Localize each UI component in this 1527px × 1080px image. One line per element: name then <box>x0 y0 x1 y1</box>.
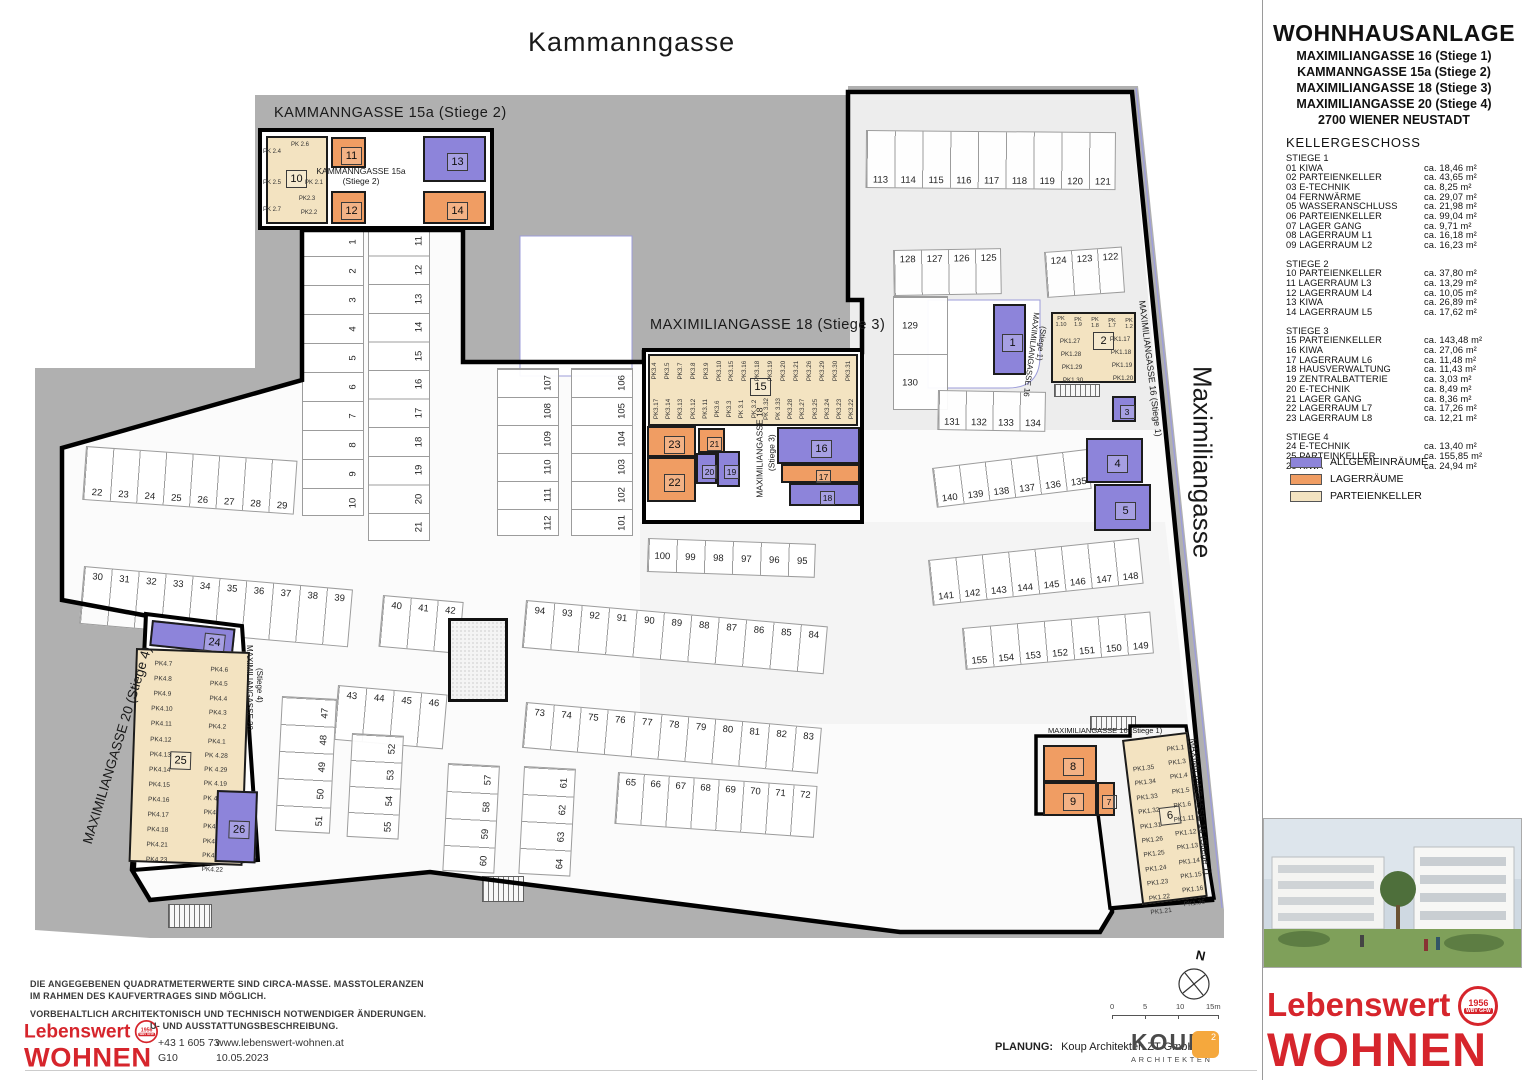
pk-space-label: PK1.26 <box>1142 836 1164 845</box>
parking-space-number: 73 <box>534 707 545 719</box>
room-16: 16 <box>777 427 860 464</box>
parking-space-number: 152 <box>1052 647 1069 659</box>
parking-space-number: 87 <box>726 622 737 634</box>
parking-space-number: 141 <box>938 590 955 603</box>
planung-label: PLANUNG: <box>995 1041 1053 1053</box>
stiege2-center-1: KAMMANNGASSE 15a <box>300 167 422 176</box>
room-number-badge: 12 <box>341 202 362 220</box>
parking-space-number: 24 <box>144 491 155 503</box>
parking-group-col-11-21: 1112131415161718192021 <box>368 226 430 541</box>
parking-space-number: 149 <box>1132 640 1149 652</box>
pk-space-label: PK4.11 <box>151 722 172 730</box>
parking-space-number: 86 <box>753 624 764 636</box>
room-11: 11 <box>331 137 366 168</box>
pk-space-label: PK 2.4 <box>263 149 281 155</box>
project-photo <box>1263 818 1522 968</box>
pk-space-label: PK 1.7 <box>1105 319 1120 331</box>
storage-room <box>448 618 508 702</box>
parking-space-number: 35 <box>226 583 237 595</box>
pk-space-label: PK 4.28 <box>205 753 228 761</box>
room-23: 23 <box>647 426 696 457</box>
pk-space-label: PK1.15 <box>1180 872 1202 881</box>
parking-space-number: 21 <box>414 522 425 533</box>
pk-space-label: PK1.28 <box>1061 352 1081 359</box>
parking-space-number: 71 <box>775 788 786 800</box>
pk-space-label: PK1.19 <box>1112 363 1132 370</box>
pk-space-label: PK4.16 <box>148 797 170 805</box>
parking-space-number: 32 <box>146 576 157 588</box>
compass-icon <box>1174 964 1214 1004</box>
room-21: 21 <box>698 428 725 453</box>
parking-space-number: 118 <box>1012 176 1027 187</box>
parking-space-number: 16 <box>414 379 425 390</box>
parking-space-number: 125 <box>981 253 997 264</box>
pk-space-label: PK1.1 <box>1166 745 1184 754</box>
pk-space-label: PK 2.6 <box>291 142 309 148</box>
pk-space-label: PK3.27 <box>800 399 807 419</box>
parking-space-number: 105 <box>617 403 628 419</box>
parking-group-row-113-121: 113114115116117118119120121 <box>865 130 1116 190</box>
pk-space-label: PK3.5 <box>665 363 672 380</box>
parking-space-number: 108 <box>543 403 554 419</box>
parking-group-col-1-10: 12345678910 <box>302 226 364 516</box>
pk-space-label: PK1.25 <box>1143 851 1165 860</box>
pk-space-label: PK3.8 <box>690 363 697 380</box>
parking-space-number: 130 <box>902 377 918 388</box>
room-8: 8 <box>1043 745 1097 782</box>
pk-space-label: PK4.23 <box>146 857 168 865</box>
pk-space-label: PK4.14 <box>149 767 171 775</box>
pk-space-label: PK4.4 <box>209 696 227 703</box>
schedule-room-name: 14 LAGERRAUM L5 <box>1286 308 1424 318</box>
pk-space-label: PK2.3 <box>299 196 315 202</box>
stiege3-header: MAXIMILIANGASSE 18 (Stiege 3) <box>650 318 885 334</box>
parking-space-number: 54 <box>384 795 396 806</box>
parking-space-number: 100 <box>654 551 670 563</box>
schedule-group: STIEGE 315 PARTEIENKELLERca. 143,48 m²16… <box>1286 326 1512 424</box>
floor-title: KELLERGESCHOSS <box>1286 135 1421 150</box>
pk-space-label: PK 2.7 <box>263 207 281 213</box>
parking-space-number: 98 <box>713 553 724 564</box>
address-line: MAXIMILIANGASSE 20 (Stiege 4) <box>1266 96 1522 112</box>
parking-space-number: 122 <box>1102 251 1119 263</box>
pk-space-label: PK4.21 <box>146 842 168 850</box>
room-17: 17 <box>781 464 860 483</box>
pk-space-label: PK3.6 <box>715 401 722 418</box>
parking-space-number: 91 <box>616 612 627 624</box>
parking-space-number: 39 <box>334 592 345 604</box>
north-label: N <box>1195 947 1207 964</box>
parking-space-number: 114 <box>901 175 916 186</box>
parking-space-number: 57 <box>482 774 494 785</box>
parking-space-number: 31 <box>119 574 130 586</box>
legend-swatch <box>1290 491 1322 502</box>
street-kammanngasse: Kammanngasse <box>528 28 735 58</box>
parking-space-number: 132 <box>971 417 987 428</box>
pk-space-label: PK3.28 <box>788 399 795 419</box>
parking-space-number: 121 <box>1095 176 1111 187</box>
parking-group-row-73-83: 7374757677787980818283 <box>522 702 822 774</box>
parking-space-number: 68 <box>700 782 711 794</box>
parking-space-number: 37 <box>280 588 291 600</box>
parking-space-number: 135 <box>1070 476 1087 489</box>
parking-space-number: 116 <box>956 175 971 186</box>
parking-space-number: 18 <box>414 436 425 447</box>
parking-space-number: 13 <box>414 293 425 304</box>
parking-space-number: 109 <box>543 431 554 447</box>
parking-space-number: 11 <box>414 236 425 246</box>
address-line: MAXIMILIANGASSE 18 (Stiege 3) <box>1266 80 1522 96</box>
parking-space-number: 84 <box>808 629 819 641</box>
parking-space-number: 8 <box>348 442 359 447</box>
parking-space-number: 110 <box>543 459 554 474</box>
pk-space-label: PK1.14 <box>1178 858 1200 867</box>
parking-space-number: 42 <box>445 605 456 617</box>
parking-space-number: 19 <box>414 465 425 476</box>
room-20: 20 <box>696 453 717 484</box>
parking-space-number: 124 <box>1050 255 1067 267</box>
website: www.lebenswert-wohnen.at <box>216 1037 344 1049</box>
parking-space-number: 15 <box>414 350 425 361</box>
room-number-badge: 9 <box>1063 793 1084 811</box>
parking-space-number: 123 <box>1076 253 1093 265</box>
room-4: 4 <box>1086 438 1143 483</box>
pk-space-label: PK3.26 <box>807 361 814 381</box>
schedule-room-name: 23 LAGERRAUM L8 <box>1286 414 1424 424</box>
parking-space-number: 144 <box>1017 582 1034 595</box>
legend: ALLGEMEINRÄUMELAGERRÄUMEPARTEIENKELLER <box>1290 456 1428 507</box>
pk-space-label: PK 1.9 <box>1071 318 1086 330</box>
parking-space-number: 95 <box>797 556 808 567</box>
north-arrow: N <box>1172 948 1222 1010</box>
schedule-room-area: ca. 24,94 m² <box>1424 462 1512 472</box>
parking-space-number: 99 <box>685 552 696 563</box>
room-number-badge: 17 <box>816 470 831 484</box>
parking-space-number: 62 <box>557 804 569 815</box>
parking-group-row-141-148: 141142143144145146147148 <box>928 538 1144 606</box>
pk-space-label: PK 3.1 <box>739 400 746 419</box>
room-number-badge: 4 <box>1107 455 1128 473</box>
parking-space-number: 80 <box>722 724 733 736</box>
parking-space-number: 133 <box>998 418 1014 429</box>
parking-space-number: 14 <box>414 322 425 333</box>
parking-space-number: 72 <box>800 789 811 801</box>
room-number-badge: 23 <box>664 436 685 454</box>
pk-space-label: PK1.35 <box>1133 765 1155 774</box>
stiege2-center-2: (Stiege 2) <box>300 177 422 186</box>
parking-space-number: 126 <box>954 253 970 264</box>
parking-space-number: 58 <box>481 801 493 812</box>
pk-space-label: PK3.23 <box>837 399 844 419</box>
parking-space-number: 127 <box>927 254 943 265</box>
pk-space-label: PK3.14 <box>666 399 673 419</box>
legend-label: LAGERRÄUME <box>1330 473 1404 485</box>
room-number-badge: 1 <box>1002 334 1023 352</box>
scale-tick-label: 5 <box>1143 1002 1147 1011</box>
pk-space-label: PK1.29 <box>1062 365 1082 372</box>
pk-space-label: PK3.15 <box>729 361 736 381</box>
parking-space-number: 4 <box>348 326 359 331</box>
parking-space-number: 23 <box>118 489 129 501</box>
parking-space-number: 148 <box>1122 571 1139 584</box>
parking-space-number: 78 <box>668 719 679 731</box>
room-number-badge: 18 <box>820 491 835 505</box>
parking-space-number: 6 <box>348 384 359 389</box>
parking-space-number: 88 <box>698 620 709 632</box>
pk-space-label: PK3.10 <box>716 361 723 381</box>
pk-space-label: PK3.13 <box>678 399 685 419</box>
stair-ramp <box>482 876 524 902</box>
pk-space-label: PK4.9 <box>153 691 171 698</box>
parking-space-number: 33 <box>173 578 184 590</box>
parking-group-row-95-100: 1009998979695 <box>647 538 816 578</box>
stiege4-small-2: (Stiege 4) <box>254 668 263 703</box>
room-18: 18 <box>789 483 860 506</box>
legend-item-allgemein: ALLGEMEINRÄUME <box>1290 456 1428 468</box>
parking-space-number: 75 <box>588 712 599 724</box>
pk-space-label: PK1.36 <box>1184 900 1206 909</box>
note-sqm-2: IM RAHMEN DES KAUFVERTRAGES SIND MÖGLICH… <box>30 991 266 1001</box>
room-number-badge: 21 <box>707 437 722 451</box>
parking-space-number: 151 <box>1079 645 1096 657</box>
parking-space-number: 29 <box>276 500 287 512</box>
parking-space-number: 34 <box>199 581 210 593</box>
parking-space-number: 107 <box>543 375 554 391</box>
parking-space-number: 22 <box>91 487 102 499</box>
stair-ramp <box>1054 384 1100 397</box>
parking-space-number: 2 <box>348 268 359 273</box>
parking-space-number: 113 <box>873 175 888 186</box>
plan-number: G10 <box>158 1052 178 1064</box>
logo-text-wohnen: WOHNEN <box>24 1041 158 1073</box>
pk-space-label: PK1.30 <box>1063 378 1083 385</box>
parking-space-number: 45 <box>401 695 412 707</box>
parking-space-number: 145 <box>1043 579 1060 592</box>
room-3: 3 <box>1112 396 1136 422</box>
phone-number: +43 1 605 73 <box>158 1037 220 1049</box>
room-19: 19 <box>717 451 740 487</box>
parking-space-number: 77 <box>641 717 652 729</box>
legend-label: PARTEIENKELLER <box>1330 490 1422 502</box>
parking-group-row-122-124: 124123122 <box>1044 247 1125 298</box>
room-number-badge: 25 <box>170 751 192 770</box>
stair-ramp <box>372 140 426 156</box>
parking-space-number: 97 <box>741 554 752 565</box>
parking-space-number: 92 <box>589 610 600 622</box>
pk-space-label: PK1.21 <box>1150 908 1172 917</box>
schedule-row: 14 LAGERRAUM L5ca. 17,62 m² <box>1286 308 1512 318</box>
lebenswert-wohnen-logo: Lebenswert 1956 WBV GFW WOHNEN <box>1267 986 1498 1077</box>
parking-space-number: 119 <box>1040 176 1055 187</box>
pk-space-label: PK1.3 <box>1168 759 1186 768</box>
parking-space-number: 9 <box>348 471 359 476</box>
parking-group-row-135-140: 140139138137136135 <box>932 449 1092 508</box>
parking-space-number: 27 <box>224 496 235 508</box>
parking-space-number: 46 <box>428 697 439 709</box>
project-title: WOHNHAUSANLAGE <box>1266 20 1522 47</box>
parking-space-number: 76 <box>615 714 626 726</box>
pk-space-label: PK4.7 <box>154 661 172 668</box>
parking-space-number: 63 <box>556 831 568 842</box>
parking-space-number: 66 <box>650 779 661 791</box>
room-number-badge: 7 <box>1102 795 1117 809</box>
parking-space-number: 41 <box>418 603 429 615</box>
pk-space-label: PK1.27 <box>1060 339 1080 346</box>
note-sqm-1: DIE ANGEGEBENEN QUADRATMETERWERTE SIND C… <box>30 979 424 989</box>
legend-swatch <box>1290 457 1322 468</box>
street-maximiliangasse: Maximiliangasse <box>1188 366 1217 558</box>
parking-space-number: 43 <box>346 690 357 702</box>
parking-space-number: 1 <box>348 239 359 244</box>
parking-group-row-65-72: 6566676869707172 <box>614 772 817 838</box>
pk-space-label: PK3.11 <box>703 399 710 419</box>
scale-line <box>1112 1015 1218 1016</box>
schedule-group-title: STIEGE 1 <box>1286 153 1512 164</box>
parking-space-number: 52 <box>386 744 398 755</box>
parking-space-number: 55 <box>382 821 394 832</box>
logo-text-lebenswert: Lebenswert <box>24 1020 130 1042</box>
parking-space-number: 140 <box>941 492 958 505</box>
parking-group-row-125-128: 128127126125 <box>893 248 1002 296</box>
legend-item-lager: LAGERRÄUME <box>1290 473 1428 485</box>
parking-space-number: 134 <box>1025 418 1041 429</box>
pk-space-label: PK 1.2 <box>1122 319 1137 331</box>
pk-space-label: PK3.24 <box>825 399 832 419</box>
pk-space-label: PK3.29 <box>819 361 826 381</box>
room-1: 1 <box>993 304 1026 375</box>
parking-space-number: 30 <box>92 571 103 583</box>
legend-swatch <box>1290 474 1322 485</box>
stair-ramp <box>168 904 212 928</box>
parking-space-number: 147 <box>1096 573 1113 586</box>
parking-space-number: 7 <box>348 413 359 418</box>
parking-space-number: 142 <box>964 587 981 600</box>
parking-space-number: 82 <box>776 728 787 740</box>
parking-space-number: 83 <box>803 731 814 743</box>
parking-space-number: 50 <box>315 788 327 799</box>
room-number-badge: 5 <box>1115 502 1136 520</box>
parking-space-number: 79 <box>695 721 706 733</box>
room-22: 22 <box>647 457 696 502</box>
parking-space-number: 128 <box>900 254 916 265</box>
pk-space-label: PK 2.5 <box>263 180 281 186</box>
parking-space-number: 49 <box>317 761 329 772</box>
stiege1-horizontal: MAXIMILIANGASSE 16 (Stiege 1) <box>1048 727 1162 735</box>
parking-space-number: 153 <box>1025 650 1042 662</box>
parking-space-number: 93 <box>561 608 572 620</box>
pk-space-label: PK1.24 <box>1145 865 1167 874</box>
stiege2-header: KAMMANNGASSE 15a (Stiege 2) <box>274 106 507 122</box>
address-city: 2700 WIENER NEUSTADT <box>1266 112 1522 128</box>
pk-space-label: PK4.12 <box>150 737 172 745</box>
parking-space-number: 60 <box>478 855 490 866</box>
parking-space-number: 139 <box>967 488 984 501</box>
pk-space-label: PK3.16 <box>742 361 749 381</box>
schedule-group: STIEGE 101 KIWAca. 18,46 m²02 PARTEIENKE… <box>1286 153 1512 251</box>
parking-space-number: 65 <box>625 777 636 789</box>
pk-space-label: PK1.4 <box>1170 773 1188 782</box>
parking-space-number: 38 <box>307 590 318 602</box>
parking-space-number: 81 <box>749 726 760 738</box>
pk-space-label: PK1.12 <box>1175 829 1197 838</box>
logo-text-wohnen: WOHNEN <box>1267 1022 1498 1077</box>
parking-space-number: 40 <box>391 600 402 612</box>
room-7: 7 <box>1097 782 1115 816</box>
room-9: 9 <box>1043 782 1097 816</box>
address-line: KAMMANNGASSE 15a (Stiege 2) <box>1266 64 1522 80</box>
parking-space-number: 26 <box>197 494 208 506</box>
room-number-badge: 11 <box>341 147 362 165</box>
parking-space-number: 51 <box>314 815 326 826</box>
parking-space-number: 47 <box>319 707 331 718</box>
pk-space-label: PK 4.19 <box>204 781 227 789</box>
pk-space-label: PK3.30 <box>832 361 839 381</box>
pk-space-label: PK3.31 <box>845 361 852 381</box>
logo-seal: 1956 WBV GFW <box>1458 986 1498 1026</box>
note-changes: VORBEHALTLICH ARCHITEKTONISCH UND TECHNI… <box>30 1009 426 1019</box>
room-number-badge: 13 <box>447 153 468 171</box>
pk-space-label: PK 4.29 <box>204 767 227 775</box>
parking-space-number: 115 <box>928 175 943 186</box>
room-14: 14 <box>423 191 486 224</box>
schedule-room-area: ca. 16,23 m² <box>1424 241 1512 251</box>
schedule-group: STIEGE 210 PARTEIENKELLERca. 37,80 m²11 … <box>1286 259 1512 318</box>
pk-space-label: PK1.20 <box>1113 376 1133 383</box>
parking-space-number: 96 <box>769 555 780 566</box>
parking-space-number: 36 <box>253 585 264 597</box>
parking-space-number: 5 <box>348 355 359 360</box>
pk-space-label: PK3.3 <box>727 401 734 418</box>
pk-space-label: PK1.18 <box>1111 350 1131 357</box>
pk-space-label: PK4.10 <box>151 706 173 714</box>
parking-space-number: 150 <box>1106 643 1123 655</box>
pk-space-label: PK3.17 <box>654 399 661 419</box>
scale-tick <box>1145 1015 1146 1019</box>
parking-space-number: 89 <box>671 617 682 629</box>
parking-space-number: 61 <box>558 777 570 788</box>
stiege4-small-1: MAXIMILIANGASSE 20 <box>244 645 253 730</box>
parking-group-col-52-55: 52535455 <box>347 733 404 840</box>
scale-tick <box>1178 1015 1179 1019</box>
parking-space-number: 28 <box>250 498 261 510</box>
pk-space-label: PK1.5 <box>1172 787 1190 796</box>
stiege3-center-2: (Stiege 3) <box>767 373 776 533</box>
parking-space-number: 117 <box>984 176 999 187</box>
parking-space-number: 17 <box>414 408 425 419</box>
parking-space-number: 48 <box>318 734 330 745</box>
parking-space-number: 101 <box>617 515 628 531</box>
pk-space-label: PK1.33 <box>1136 793 1158 802</box>
parking-group-row-22-29: 2223242526272829 <box>82 446 297 515</box>
pk-space-label: PK3.20 <box>781 361 788 381</box>
pk-space-label: PK3.7 <box>678 363 685 380</box>
parking-space-number: 129 <box>902 320 918 331</box>
room-number-badge: 22 <box>664 474 685 492</box>
parking-space-number: 112 <box>543 515 554 530</box>
parking-space-number: 69 <box>725 784 736 796</box>
room-5: 5 <box>1094 484 1151 531</box>
parking-space-number: 143 <box>990 584 1007 597</box>
parking-space-number: 12 <box>414 265 425 276</box>
room-number-badge: 3 <box>1120 405 1135 419</box>
parking-space-number: 25 <box>171 493 182 505</box>
schedule-room-area: ca. 12,21 m² <box>1424 414 1512 424</box>
plan-date: 10.05.2023 <box>216 1052 269 1064</box>
schedule-room-name: 09 LAGERRAUM L2 <box>1286 241 1424 251</box>
parking-space-number: 67 <box>675 781 686 793</box>
parking-space-number: 120 <box>1067 176 1083 187</box>
parking-space-number: 155 <box>971 654 988 666</box>
